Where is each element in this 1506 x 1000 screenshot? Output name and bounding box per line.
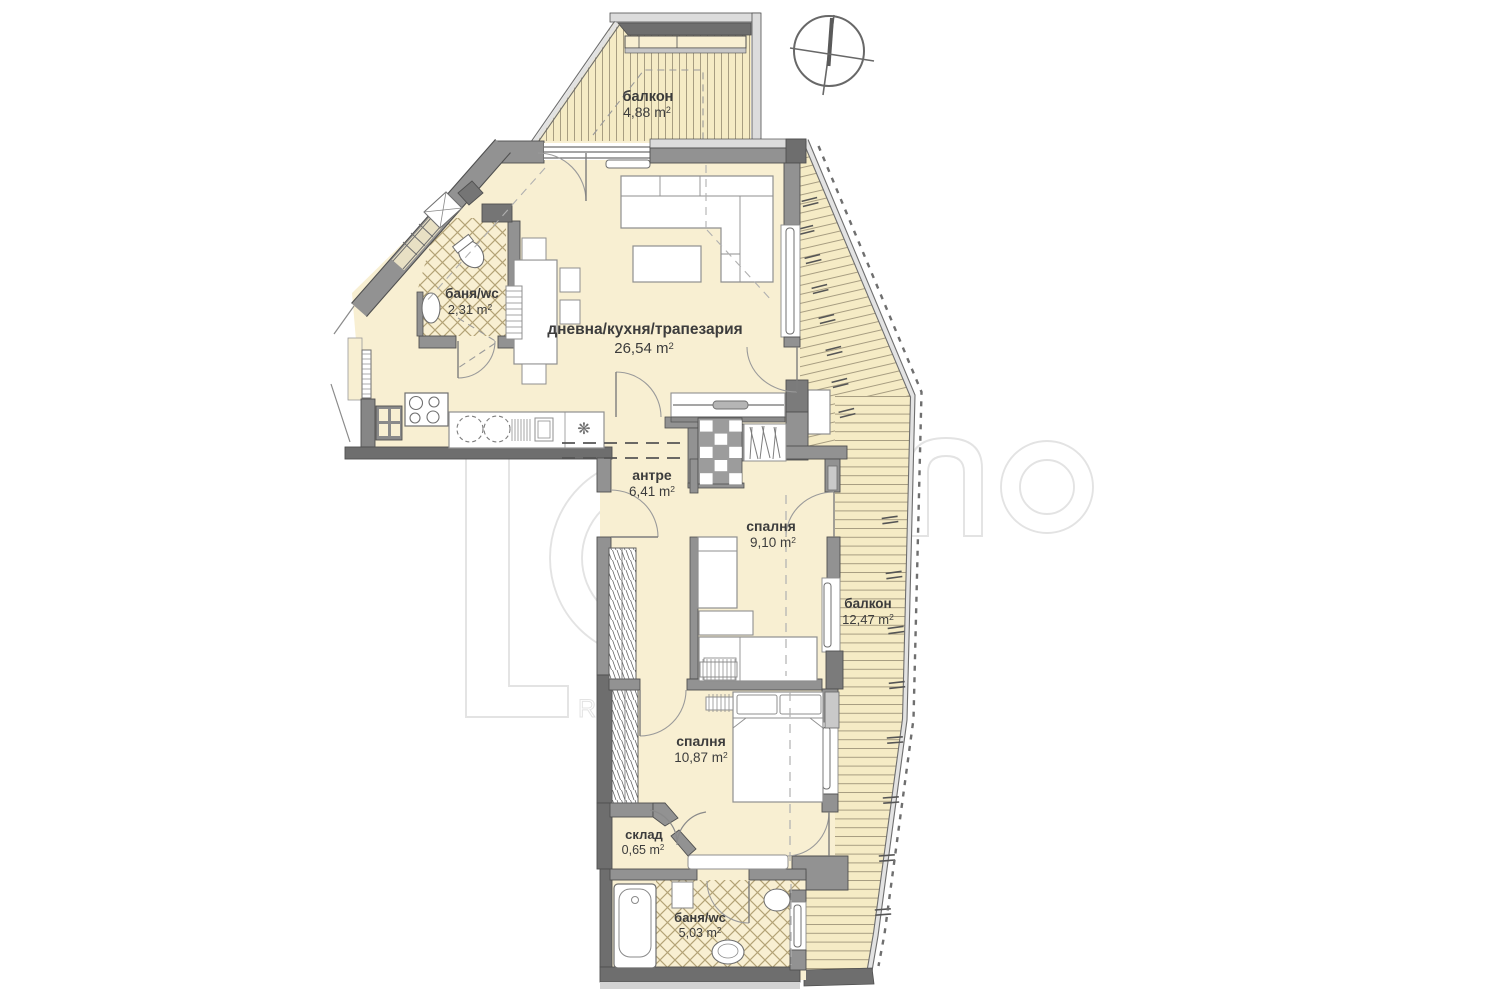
svg-text:❋: ❋ <box>577 421 590 438</box>
svg-text:12,47 m2: 12,47 m2 <box>842 612 894 627</box>
svg-text:балкон: балкон <box>844 596 891 611</box>
svg-text:4,88 m2: 4,88 m2 <box>623 104 671 120</box>
svg-text:0,65 m2: 0,65 m2 <box>622 843 665 857</box>
svg-text:спалня: спалня <box>676 733 726 749</box>
svg-text:9,10 m2: 9,10 m2 <box>750 535 796 550</box>
svg-text:5,03 m2: 5,03 m2 <box>679 926 722 940</box>
svg-text:баня/wc: баня/wc <box>445 286 499 301</box>
svg-text:антре: антре <box>632 467 672 483</box>
svg-text:спалня: спалня <box>746 518 796 534</box>
svg-text:10,87 m2: 10,87 m2 <box>674 750 728 765</box>
svg-text:склад: склад <box>625 827 663 842</box>
svg-text:дневна/кухня/трапезария: дневна/кухня/трапезария <box>547 321 742 338</box>
svg-text:6,41 m2: 6,41 m2 <box>629 484 675 499</box>
svg-text:баня/wc: баня/wc <box>674 910 726 925</box>
svg-text:2,31 m2: 2,31 m2 <box>448 302 493 317</box>
svg-text:26,54 m2: 26,54 m2 <box>614 340 674 357</box>
svg-text:балкон: балкон <box>623 89 674 105</box>
